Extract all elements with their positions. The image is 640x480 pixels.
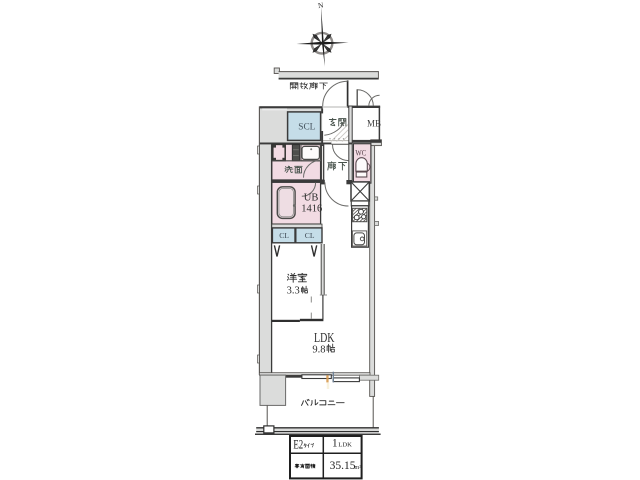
svg-text:WC: WC (355, 149, 366, 158)
svg-text:1416: 1416 (301, 204, 322, 215)
svg-text:1: 1 (332, 438, 338, 450)
svg-text:m²: m² (354, 464, 361, 471)
svg-text:CL: CL (305, 231, 315, 240)
svg-text:MB: MB (367, 119, 381, 129)
svg-text:N: N (317, 0, 324, 10)
svg-text:9.8: 9.8 (312, 344, 325, 355)
svg-text:CL: CL (279, 231, 289, 240)
svg-text:3.3: 3.3 (287, 285, 300, 296)
svg-text:E2: E2 (293, 437, 303, 451)
svg-text:35.15: 35.15 (330, 460, 356, 472)
svg-text:LDK: LDK (338, 442, 352, 449)
svg-text:SCL: SCL (298, 122, 315, 132)
svg-text:UB: UB (304, 193, 319, 204)
